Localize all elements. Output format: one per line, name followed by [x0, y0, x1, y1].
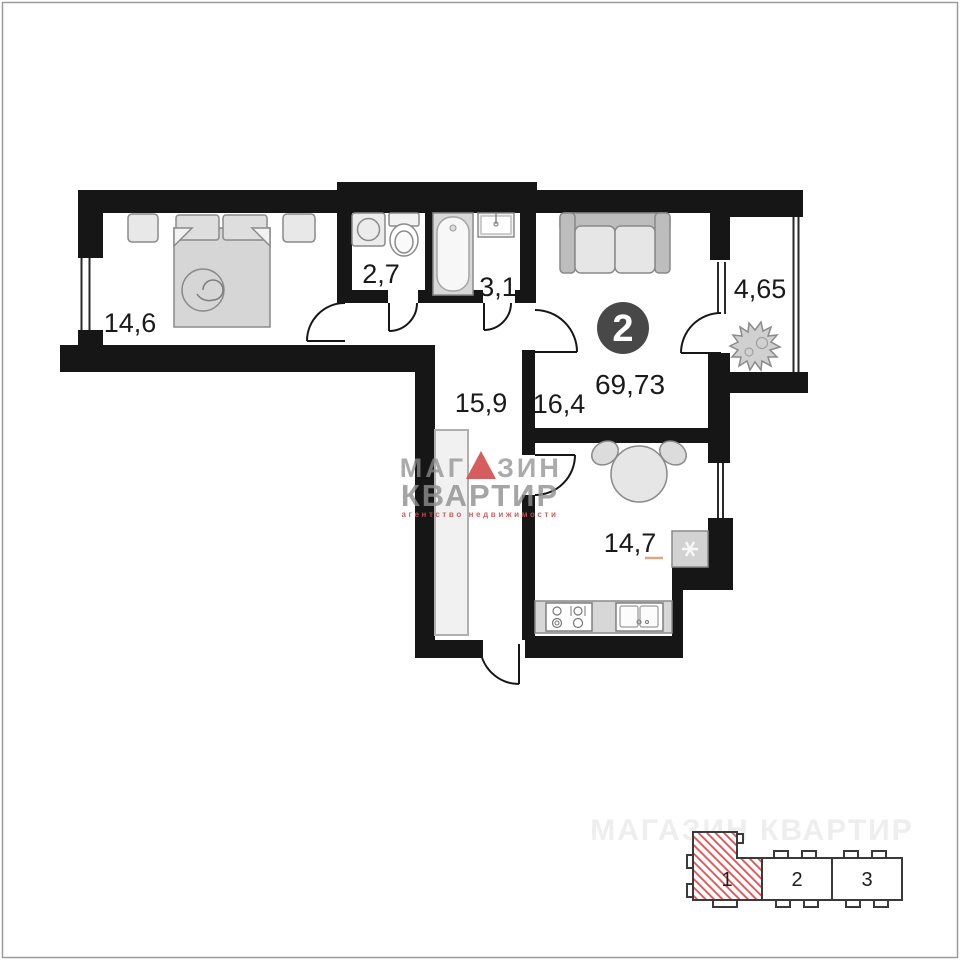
kitchen-area-label: 14,7 — [604, 528, 657, 558]
toilet — [389, 213, 419, 256]
section-3-porch — [844, 851, 858, 858]
section-1-porch — [687, 855, 693, 868]
wall-segment — [525, 636, 683, 658]
bedroom-door — [307, 303, 345, 341]
kitchen-window — [718, 463, 723, 518]
wall-segment — [337, 290, 388, 303]
dining-table — [587, 436, 690, 502]
section-2-porch — [802, 851, 816, 858]
watermark: МАГ ЗИН КВАРТИР агентство недвижимости — [400, 451, 562, 519]
wall-segment — [708, 353, 730, 443]
bathroom-sink — [478, 213, 514, 237]
section-2-porch — [774, 851, 788, 858]
wall-segment — [672, 588, 683, 658]
watermark-triangle-icon — [466, 451, 496, 479]
sofa — [560, 213, 670, 273]
room-count-badge: 2 — [597, 302, 649, 354]
section-1-porch — [713, 900, 737, 907]
hallway-area-label: 15,9 — [455, 388, 508, 418]
section-3-porch — [874, 900, 888, 907]
section-1-porch — [737, 834, 743, 843]
washing-machine — [352, 213, 385, 246]
watermark-tagline: агентство недвижимости — [401, 510, 558, 519]
fridge — [672, 531, 708, 567]
wall-segment — [537, 190, 730, 213]
wall-segment — [728, 372, 808, 393]
wall-segment — [78, 190, 103, 258]
section-1-label: 1 — [721, 869, 732, 891]
bathtub — [433, 213, 473, 295]
nightstand-right — [283, 214, 315, 242]
section-2-label: 2 — [791, 869, 802, 891]
balcony-glazing — [794, 217, 799, 372]
living-balcony-window — [718, 262, 725, 314]
watermark-brand-line2: КВАРТИР — [401, 478, 559, 513]
section-3-porch — [846, 900, 860, 907]
bed — [174, 215, 270, 327]
floorplan-page: 14,6 2,7 3,1 15,9 16,4 4,65 14,7 69,73 2… — [0, 0, 960, 960]
apartment-plan: 14,6 2,7 3,1 15,9 16,4 4,65 14,7 69,73 2 — [60, 182, 808, 684]
plant — [730, 322, 780, 370]
bathroom-door — [389, 303, 417, 331]
wall-segment — [337, 182, 352, 295]
balcony-door — [681, 313, 721, 353]
wall-segment — [78, 190, 337, 213]
balcony-area-label: 4,65 — [734, 274, 787, 304]
bedroom-window — [82, 258, 90, 330]
bath-door — [484, 303, 511, 330]
wall-segment — [708, 443, 730, 463]
stove — [546, 603, 592, 631]
kitchen-counter — [535, 601, 672, 633]
section-1-porch — [687, 884, 693, 897]
total-area-label: 69,73 — [595, 369, 665, 400]
bath-area-label: 3,1 — [479, 272, 517, 302]
wall-segment — [522, 428, 730, 443]
kitchen-sink — [616, 603, 663, 631]
section-2-porch — [776, 900, 790, 907]
bathroom-area-label: 2,7 — [362, 259, 400, 289]
living-area-label: 16,4 — [533, 389, 586, 419]
wall-segment — [672, 567, 733, 590]
entrance-door — [480, 644, 519, 684]
section-3-porch — [872, 851, 886, 858]
living-room-door — [535, 310, 577, 352]
ghost-watermark: МАГАЗИН КВАРТИР — [590, 814, 913, 847]
wall-segment — [60, 345, 435, 372]
wall-segment — [708, 518, 733, 570]
wall-segment — [710, 190, 730, 260]
wall-segment — [520, 182, 536, 303]
badge-number: 2 — [612, 308, 633, 350]
section-3-label: 3 — [861, 869, 872, 891]
wall-segment — [415, 640, 483, 658]
section-2-porch — [804, 900, 818, 907]
floor-plan-canvas: 14,6 2,7 3,1 15,9 16,4 4,65 14,7 69,73 2… — [0, 0, 960, 960]
bedroom-area-label: 14,6 — [104, 308, 157, 338]
nightstand-left — [128, 214, 158, 242]
wall-segment — [730, 190, 803, 217]
